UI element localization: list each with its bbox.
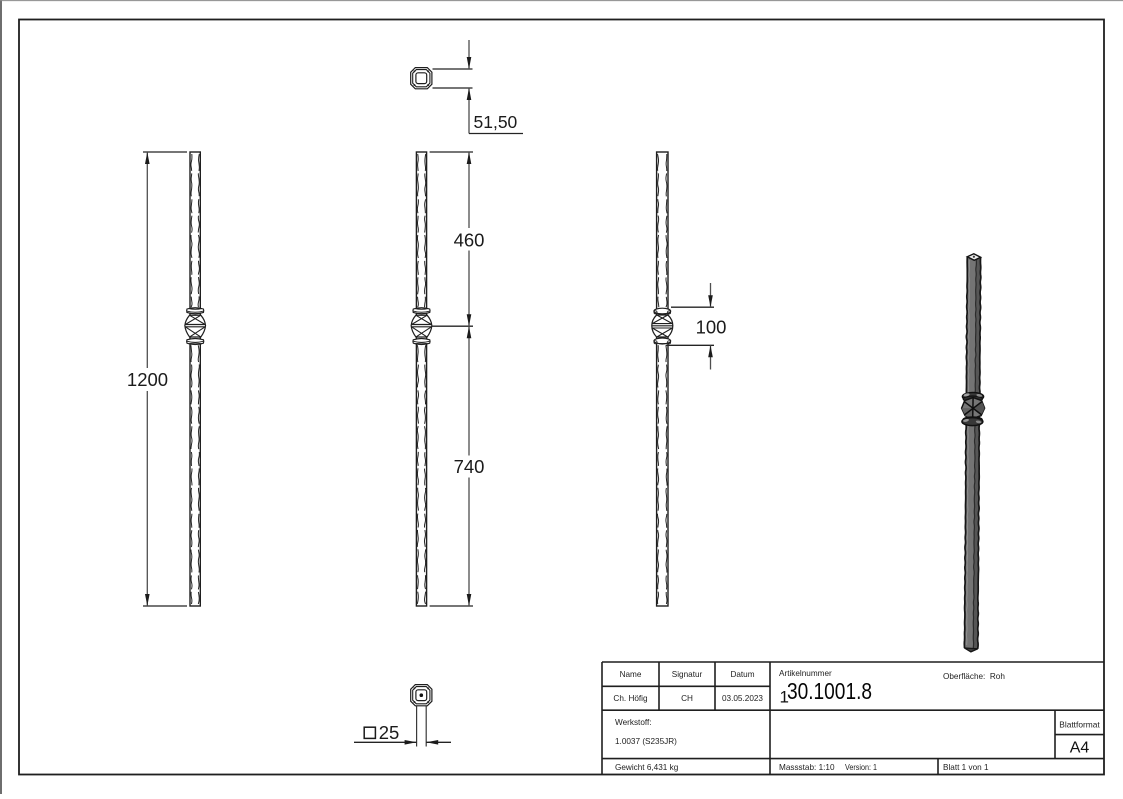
svg-text:Artikelnummer: Artikelnummer <box>779 669 832 678</box>
svg-text:Ch. Höfig: Ch. Höfig <box>613 694 648 703</box>
svg-text:Version: 1: Version: 1 <box>845 763 877 772</box>
svg-text:Blattformat: Blattformat <box>1059 721 1100 730</box>
svg-text:25: 25 <box>379 722 400 743</box>
svg-text:740: 740 <box>454 456 485 477</box>
svg-text:Werkstoff:: Werkstoff: <box>615 718 652 727</box>
svg-text:Massstab: 1:10: Massstab: 1:10 <box>779 763 835 772</box>
svg-text:Signatur: Signatur <box>672 670 703 679</box>
svg-text:Datum: Datum <box>730 670 754 679</box>
svg-text:51,50: 51,50 <box>474 112 518 132</box>
svg-text:1.0037 (S235JR): 1.0037 (S235JR) <box>615 737 677 746</box>
svg-text:Oberfläche: Roh: Oberfläche: Roh <box>943 672 1005 681</box>
svg-text:Name: Name <box>620 670 642 679</box>
svg-text:460: 460 <box>454 230 485 251</box>
svg-text:1200: 1200 <box>127 369 168 390</box>
svg-text:CH: CH <box>681 694 693 703</box>
svg-text:100: 100 <box>696 317 727 338</box>
svg-text:Gewicht 6,431 kg: Gewicht 6,431 kg <box>615 763 679 772</box>
svg-text:03.05.2023: 03.05.2023 <box>722 694 763 703</box>
svg-text:Blatt 1 von 1: Blatt 1 von 1 <box>943 763 989 772</box>
svg-text:A4: A4 <box>1070 740 1090 757</box>
svg-text:30.1001.8: 30.1001.8 <box>787 678 872 704</box>
